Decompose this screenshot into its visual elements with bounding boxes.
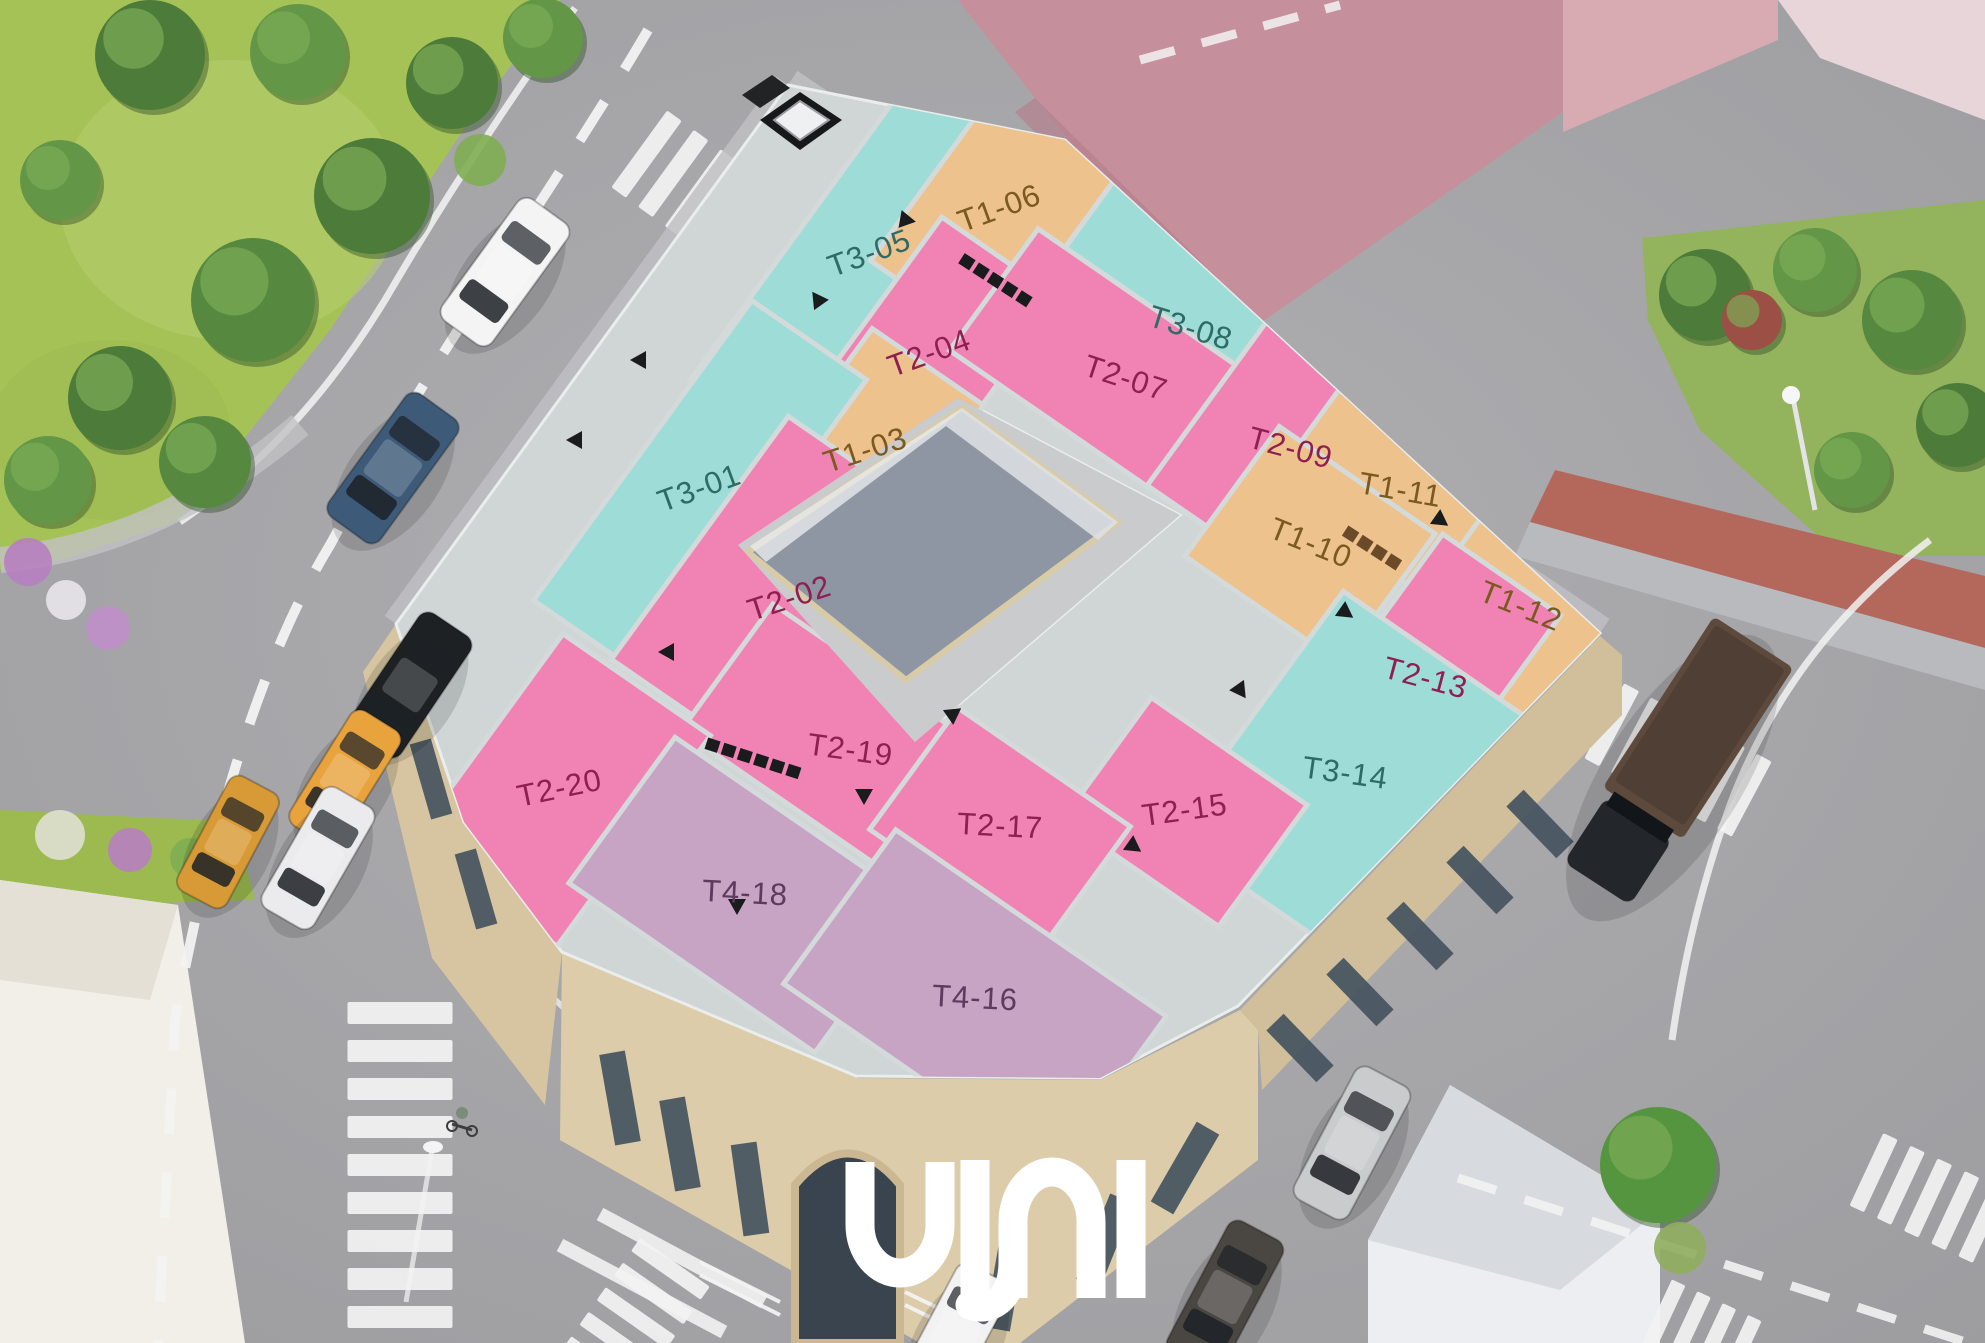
- unit-label-T2-17[interactable]: T2-17: [956, 806, 1044, 845]
- crosswalk: [348, 1002, 453, 1328]
- bush: [46, 580, 86, 620]
- bush: [35, 810, 85, 860]
- unit-label-T4-16[interactable]: T4-16: [931, 978, 1019, 1017]
- unit-label-T4-18[interactable]: T4-18: [701, 873, 789, 912]
- scene-canvas: T3-05T1-06T3-08T2-04T2-07T1-03T2-09T3-01…: [0, 0, 1985, 1343]
- bush: [86, 606, 130, 650]
- bush: [4, 538, 52, 586]
- aerial-building-visualization: T3-05T1-06T3-08T2-04T2-07T1-03T2-09T3-01…: [0, 0, 1985, 1343]
- bush: [1654, 1222, 1706, 1274]
- bush: [454, 134, 506, 186]
- bush: [108, 828, 152, 872]
